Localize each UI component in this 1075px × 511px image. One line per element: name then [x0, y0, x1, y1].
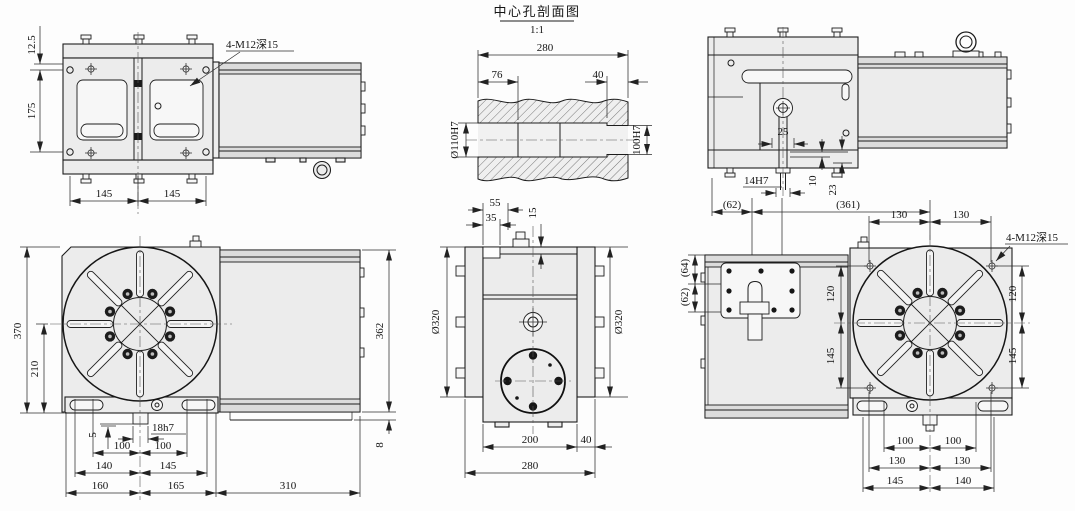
- dim-section-280: 280: [537, 42, 554, 54]
- technical-drawing-canvas: 12.5 175 145 145 4-M12深15 中心孔剖面图 1:1 280…: [0, 0, 1075, 511]
- dim-face-160: 160: [92, 480, 109, 492]
- dim-face-145: 145: [160, 460, 177, 472]
- dim-rear-145-bottom: 145: [887, 475, 904, 487]
- dim-face-140: 140: [96, 460, 113, 472]
- dim-section-40: 40: [593, 69, 605, 81]
- section-title: 中心孔剖面图: [493, 4, 580, 19]
- engineering-drawing: 12.5 175 145 145 4-M12深15 中心孔剖面图 1:1 280…: [0, 0, 1075, 511]
- dim-side-35: 35: [486, 212, 498, 224]
- tslot-nut-icon: [81, 35, 91, 44]
- dim-face-165: 165: [168, 480, 185, 492]
- dim-rear-145-right: 145: [1007, 347, 1019, 364]
- dim-front-12-5: 12.5: [26, 35, 38, 55]
- dim-rear-130-bottom-left: 130: [889, 455, 906, 467]
- dim-top-23: 23: [827, 184, 839, 196]
- view-section: 中心孔剖面图 1:1 280 76 40 Ø110H7 100H7: [449, 4, 652, 181]
- dim-rear-ref64: (64): [679, 259, 691, 278]
- dim-section-bore-right: 100H7: [631, 125, 643, 155]
- dim-side-dia320-left: Ø320: [430, 309, 442, 334]
- eyebolt-icon: [956, 32, 976, 52]
- dim-face-100-left: 100: [114, 440, 131, 452]
- dim-rear-130-top-right: 130: [953, 209, 970, 221]
- dim-rear-130-top-left: 130: [891, 209, 908, 221]
- dim-side-200: 200: [522, 434, 539, 446]
- note-rear-thread: 4-M12深15: [1006, 231, 1058, 244]
- dim-face-8: 8: [374, 442, 386, 448]
- note-front-thread: 4-M12深15: [226, 38, 278, 51]
- clamp-slot: [742, 70, 852, 83]
- dim-rear-145-left: 145: [825, 347, 837, 364]
- dim-top-ref361: (361): [836, 199, 860, 211]
- view-side: 55 35 15 Ø320 Ø320 200 40 280: [430, 197, 628, 478]
- dim-face-18h7: 18h7: [152, 422, 175, 434]
- dim-front-145-left: 145: [96, 188, 113, 200]
- dim-side-55: 55: [490, 197, 502, 209]
- dim-side-15: 15: [527, 207, 539, 219]
- dim-front-145-right: 145: [164, 188, 181, 200]
- view-front: 12.5 175 145 145 4-M12深15: [26, 26, 365, 214]
- view-face-right: (64) (62) 130 130 120 145 120 145 100 10…: [679, 209, 1068, 495]
- view-face-left: 370 210 362 8 5 18h7 100 100 140 145 160…: [12, 236, 396, 500]
- dim-top-14h7: 14H7: [744, 175, 769, 187]
- clamp-handle: [748, 314, 762, 340]
- dim-face-370: 370: [12, 322, 24, 339]
- dim-top-10: 10: [807, 175, 819, 187]
- dim-face-210: 210: [29, 360, 41, 377]
- dim-side-40: 40: [581, 434, 593, 446]
- dim-face-5: 5: [87, 432, 99, 438]
- dim-rear-100-right: 100: [945, 435, 962, 447]
- dim-top-ref62: (62): [723, 199, 742, 211]
- view-top: 25 14H7 10 23 (62) (361): [708, 27, 1011, 263]
- dim-rear-120-left: 120: [825, 285, 837, 302]
- fitting-icon: [513, 239, 529, 247]
- dim-section-76: 76: [492, 69, 504, 81]
- handwheel-knob: [314, 162, 331, 179]
- locating-key: [133, 413, 148, 424]
- dim-section-bore-left: Ø110H7: [449, 121, 461, 159]
- dim-side-280: 280: [522, 460, 539, 472]
- dim-rear-120-right: 120: [1007, 285, 1019, 302]
- section-hatch-bottom: [478, 155, 628, 181]
- dim-rear-ref62: (62): [679, 288, 691, 307]
- dim-rear-100-left: 100: [897, 435, 914, 447]
- dim-side-dia320-right: Ø320: [613, 309, 625, 334]
- dim-front-175: 175: [26, 102, 38, 119]
- dim-top-25: 25: [778, 126, 790, 138]
- dim-face-362: 362: [374, 323, 386, 340]
- dim-rear-140-bottom: 140: [955, 475, 972, 487]
- section-scale: 1:1: [530, 24, 544, 36]
- section-hatch-top: [478, 99, 628, 125]
- dim-rear-130-bottom-right: 130: [954, 455, 971, 467]
- dim-face-310: 310: [280, 480, 297, 492]
- dim-face-100-right: 100: [155, 440, 172, 452]
